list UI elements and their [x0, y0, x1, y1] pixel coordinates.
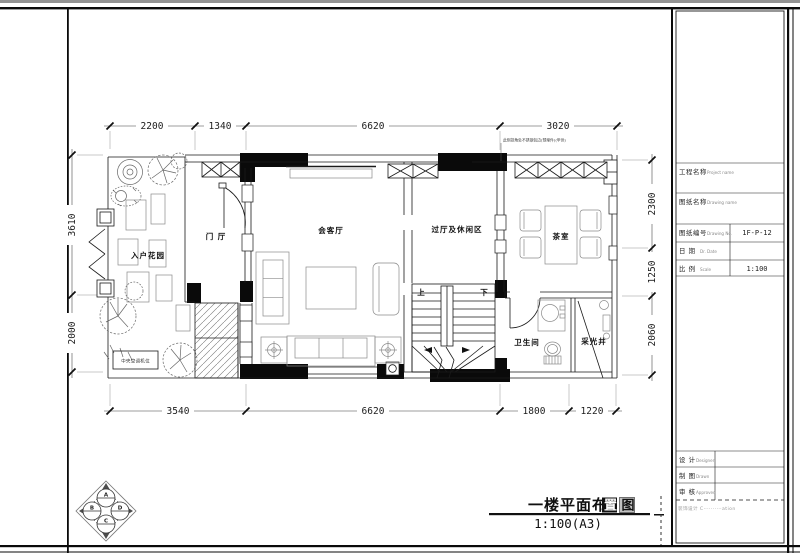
dim-right-2: 1250	[647, 260, 658, 283]
compass-label-bottom: C	[104, 519, 108, 525]
floor-plan-sheet: 2200 1340 6620 3020 3540 6620 1800 1220 …	[0, 0, 800, 559]
drawing-title-inverted-char: 置	[604, 499, 617, 514]
tb-designer-label: 设 计	[679, 455, 696, 464]
tb-designer-label-en: Designer	[696, 458, 715, 463]
drawing-scale-text: 1:100(A3)	[534, 516, 602, 531]
elevation-compass: A B D C	[76, 481, 136, 541]
foyer: 门 厅	[195, 183, 245, 378]
walls	[108, 153, 617, 382]
wall-annotation: 此侧拐角处不锈钢包边(预埋件)(甲供)	[501, 138, 566, 162]
tb-drawing-no-value: 1F-P-12	[742, 229, 772, 237]
dim-top-2: 1340	[209, 121, 232, 132]
room-label-foyer: 门 厅	[206, 231, 227, 241]
title-block: 工程名称 Project name 图纸名称 Drawing name 图纸编号…	[661, 11, 784, 545]
dim-right-3: 2060	[647, 323, 658, 346]
dim-top-4: 3020	[547, 121, 570, 132]
tb-drawn-label: 制 图	[679, 471, 696, 480]
dim-top-3: 6620	[362, 121, 385, 132]
tb-project-label: 工程名称	[679, 167, 707, 176]
room-label-bath: 卫生间	[514, 337, 540, 347]
bathroom: 卫生间	[510, 298, 565, 364]
tb-drawing-no-label-en: Drawing No.	[707, 231, 732, 236]
dim-left-1: 3610	[67, 213, 78, 236]
title-block-rows: 工程名称 Project name 图纸名称 Drawing name 图纸编号…	[678, 167, 772, 512]
annotation-text: 此侧拐角处不锈钢包边(预埋件)(甲供)	[503, 138, 566, 143]
tb-project-label-en: Project name	[707, 170, 734, 175]
tb-date-label-en: Dr. Date	[700, 249, 717, 254]
dim-bottom-4: 1220	[581, 406, 604, 417]
tb-scale-label-en: Scale	[700, 267, 711, 272]
compass-label-right: D	[118, 506, 123, 512]
tb-date-label: 日 期	[679, 247, 696, 255]
entry-garden: 中央空调机位 入户花园	[89, 153, 197, 378]
tb-scale-label: 比 例	[679, 264, 696, 273]
room-label-ac-unit: 中央空调机位	[121, 358, 150, 365]
dim-bottom-2: 6620	[362, 406, 385, 417]
light-well: 采光井	[578, 301, 610, 379]
room-label-tea: 茶室	[552, 231, 570, 241]
tb-scale-value: 1:100	[746, 265, 767, 273]
tb-watermark: 装饰设计 C··········ation	[678, 505, 736, 512]
tea-room: 茶室	[520, 206, 601, 264]
tb-approved-label-en: Approved	[696, 490, 716, 495]
room-label-entry-garden: 入户花园	[130, 250, 165, 260]
room-label-living: 会客厅	[318, 225, 344, 235]
drawing-title-boxed-char: 图	[622, 499, 635, 514]
living-room: 会客厅	[256, 167, 401, 367]
drawing-title: 一楼平面布 置 图 1:100(A3)	[489, 496, 664, 531]
dim-bottom-1: 3540	[167, 406, 190, 417]
hall-leisure: 过厅及休闲区 上 下	[412, 224, 495, 378]
compass-label-left: B	[90, 506, 94, 512]
sheet-border	[0, 0, 800, 553]
tb-drawing-no-label: 图纸编号	[679, 228, 707, 237]
dim-bottom-3: 1800	[523, 406, 546, 417]
tb-approved-label: 审 核	[679, 487, 696, 496]
stair-down-label: 下	[480, 288, 488, 297]
room-label-hall: 过厅及休闲区	[432, 224, 483, 234]
room-label-light-well: 采光井	[580, 336, 607, 346]
dim-left-2: 2000	[67, 321, 78, 344]
dim-top-1: 2200	[141, 121, 164, 132]
tb-drawn-label-en: Drawn	[696, 474, 710, 479]
staircase: 上 下	[412, 284, 495, 378]
dim-right-1: 2300	[647, 192, 658, 215]
tb-drawing-name-label: 图纸名称	[679, 197, 707, 206]
drawing-title-text: 一楼平面布	[528, 496, 608, 514]
stair-up-label: 上	[417, 287, 425, 297]
compass-label-top: A	[104, 493, 109, 499]
tb-drawing-name-label-en: Drawing name	[707, 200, 737, 205]
